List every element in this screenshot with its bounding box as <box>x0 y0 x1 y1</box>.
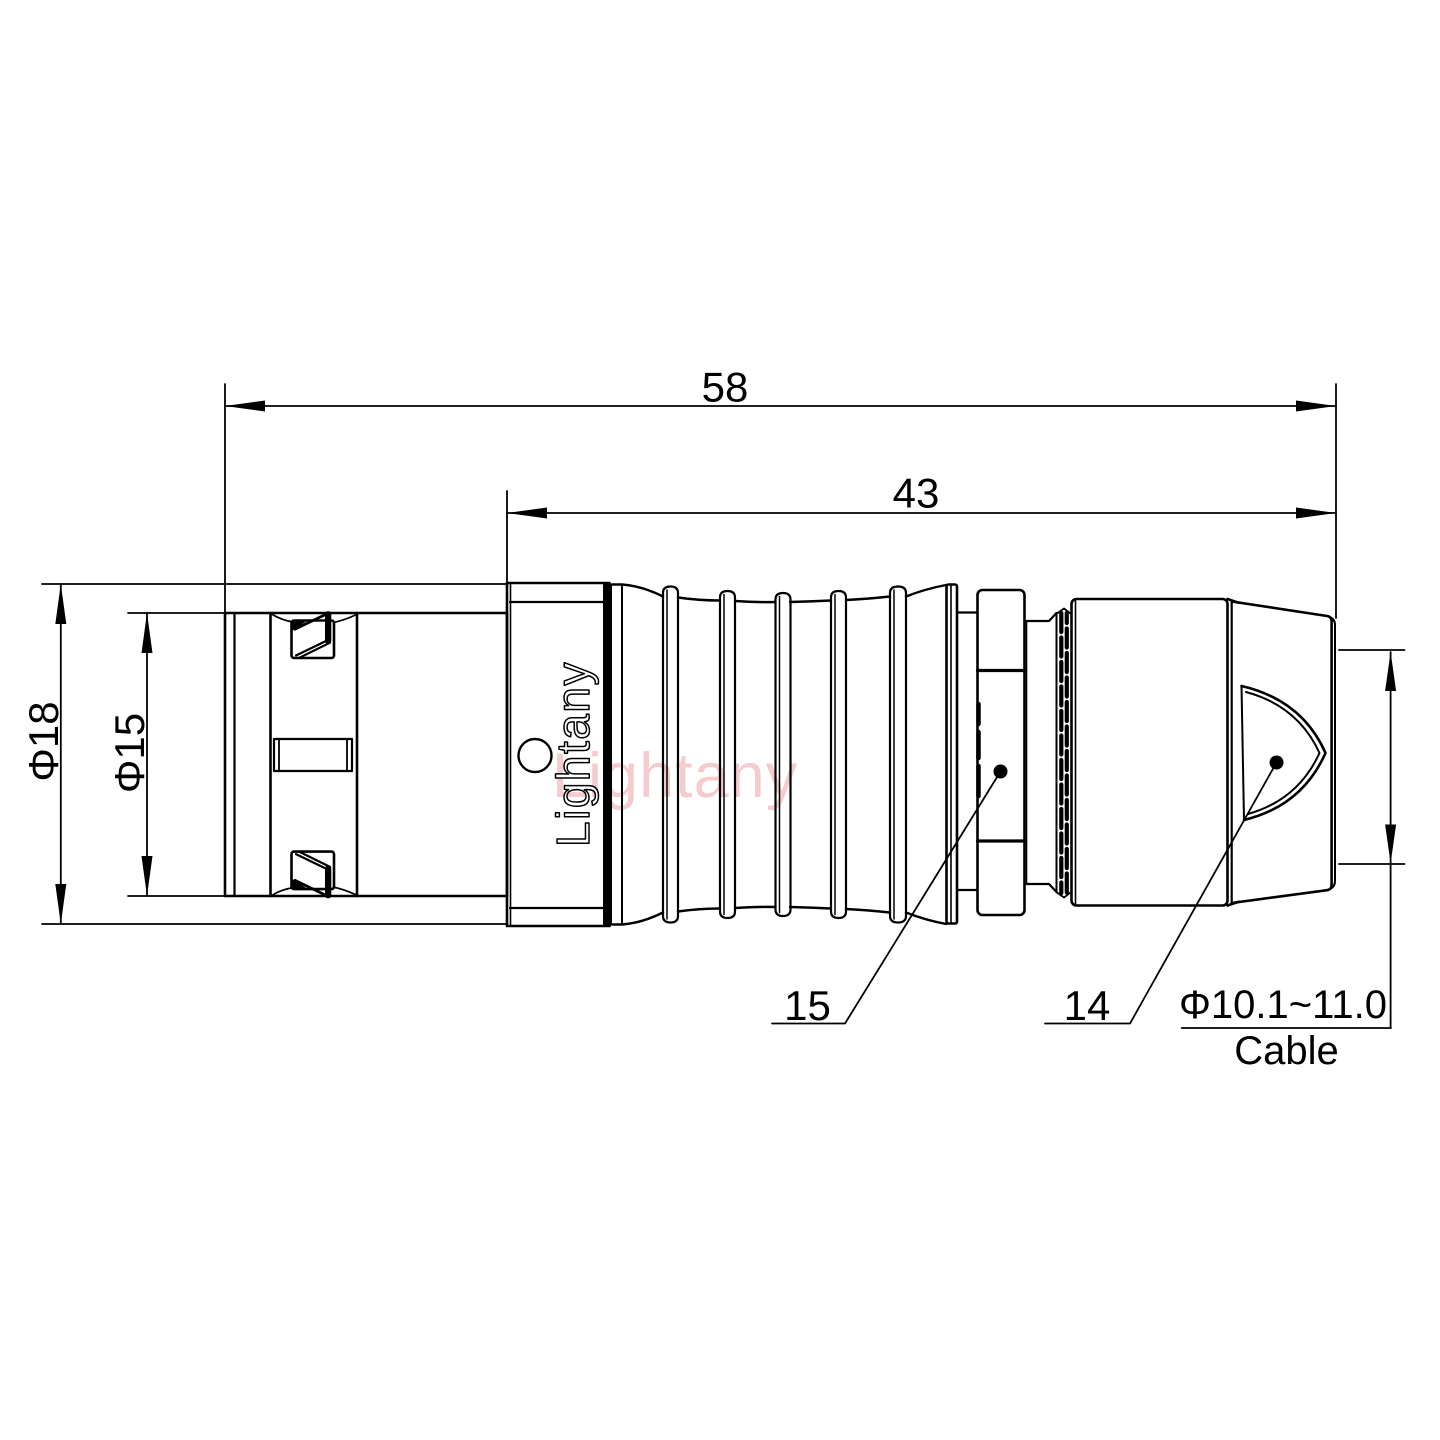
svg-text:14: 14 <box>1064 982 1111 1029</box>
svg-text:Φ15: Φ15 <box>106 713 153 793</box>
svg-text:15: 15 <box>784 982 831 1029</box>
svg-text:58: 58 <box>702 364 749 411</box>
svg-text:43: 43 <box>893 470 940 517</box>
svg-text:Lightany: Lightany <box>547 661 599 847</box>
svg-text:Φ18: Φ18 <box>20 701 67 781</box>
svg-text:Φ10.1~11.0: Φ10.1~11.0 <box>1179 983 1387 1027</box>
svg-text:Cable: Cable <box>1234 1029 1339 1073</box>
